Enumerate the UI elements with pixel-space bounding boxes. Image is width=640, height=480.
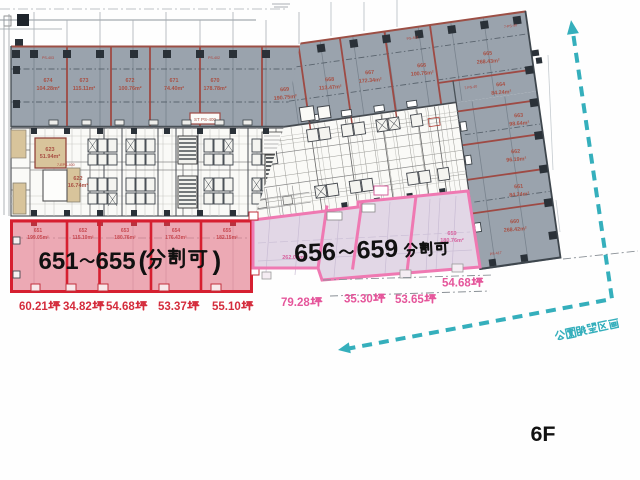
- svg-text:51.94m²: 51.94m²: [40, 153, 61, 160]
- svg-text:652: 652: [79, 228, 88, 234]
- svg-text:53.37: 53.37: [158, 301, 187, 313]
- svg-text:178.78m²: 178.78m²: [203, 86, 226, 92]
- svg-text:654: 654: [172, 228, 181, 234]
- svg-text:660: 660: [510, 219, 519, 226]
- svg-text:666: 666: [417, 63, 426, 70]
- svg-text:667: 667: [365, 70, 374, 77]
- svg-text:651: 651: [34, 228, 43, 234]
- svg-text:669: 669: [280, 87, 289, 94]
- svg-text:622: 622: [73, 176, 82, 182]
- svg-text:ST PS-400: ST PS-400: [194, 117, 216, 122]
- svg-text:60.21: 60.21: [19, 301, 48, 313]
- svg-text:668: 668: [325, 77, 334, 84]
- svg-text:100.76m²: 100.76m²: [118, 86, 141, 92]
- svg-text:661: 661: [514, 184, 523, 191]
- svg-text:176.43m²: 176.43m²: [165, 235, 187, 241]
- svg-text:115.11m²: 115.11m²: [73, 86, 96, 92]
- svg-text:655: 655: [223, 228, 232, 234]
- svg-text:115.10m²: 115.10m²: [72, 235, 93, 241]
- svg-text:6F: 6F: [530, 422, 555, 446]
- svg-text:PS-402: PS-402: [208, 56, 220, 60]
- svg-text:53.65: 53.65: [395, 294, 424, 306]
- svg-text:670: 670: [211, 78, 220, 84]
- svg-text:665: 665: [483, 51, 492, 58]
- svg-text:182.15m²: 182.15m²: [216, 235, 238, 241]
- svg-text:672: 672: [126, 78, 135, 84]
- svg-text:104.28m²: 104.28m²: [36, 86, 59, 92]
- svg-text:54.68: 54.68: [442, 278, 471, 290]
- svg-text:623: 623: [45, 147, 54, 153]
- svg-text:674: 674: [44, 78, 53, 84]
- svg-text:662: 662: [511, 149, 520, 156]
- svg-text:655: 655: [96, 248, 136, 275]
- svg-text:): ): [213, 246, 222, 276]
- svg-text:651: 651: [39, 248, 79, 275]
- svg-text:180.76m²: 180.76m²: [114, 235, 136, 241]
- svg-text:PS-403: PS-403: [42, 56, 54, 60]
- svg-text:7-EPS-400: 7-EPS-400: [57, 163, 75, 167]
- svg-text:663: 663: [514, 113, 523, 120]
- svg-text:74.40m²: 74.40m²: [164, 86, 184, 92]
- svg-text:35.30: 35.30: [344, 294, 373, 306]
- svg-text:659: 659: [447, 231, 456, 237]
- svg-text:653: 653: [121, 228, 130, 234]
- svg-text:664: 664: [496, 82, 505, 89]
- svg-text:54.68: 54.68: [106, 301, 135, 313]
- svg-text:199.05m²: 199.05m²: [27, 235, 49, 241]
- svg-text:79.28: 79.28: [281, 297, 310, 309]
- svg-text:34.82: 34.82: [63, 301, 92, 313]
- svg-text:656: 656: [293, 238, 336, 268]
- svg-text:16.74m²: 16.74m²: [68, 182, 89, 189]
- svg-text:55.10: 55.10: [212, 301, 241, 313]
- svg-text:671: 671: [170, 78, 179, 84]
- svg-text:659: 659: [356, 234, 399, 264]
- svg-text:673: 673: [80, 78, 89, 84]
- svg-text:(: (: [139, 246, 148, 276]
